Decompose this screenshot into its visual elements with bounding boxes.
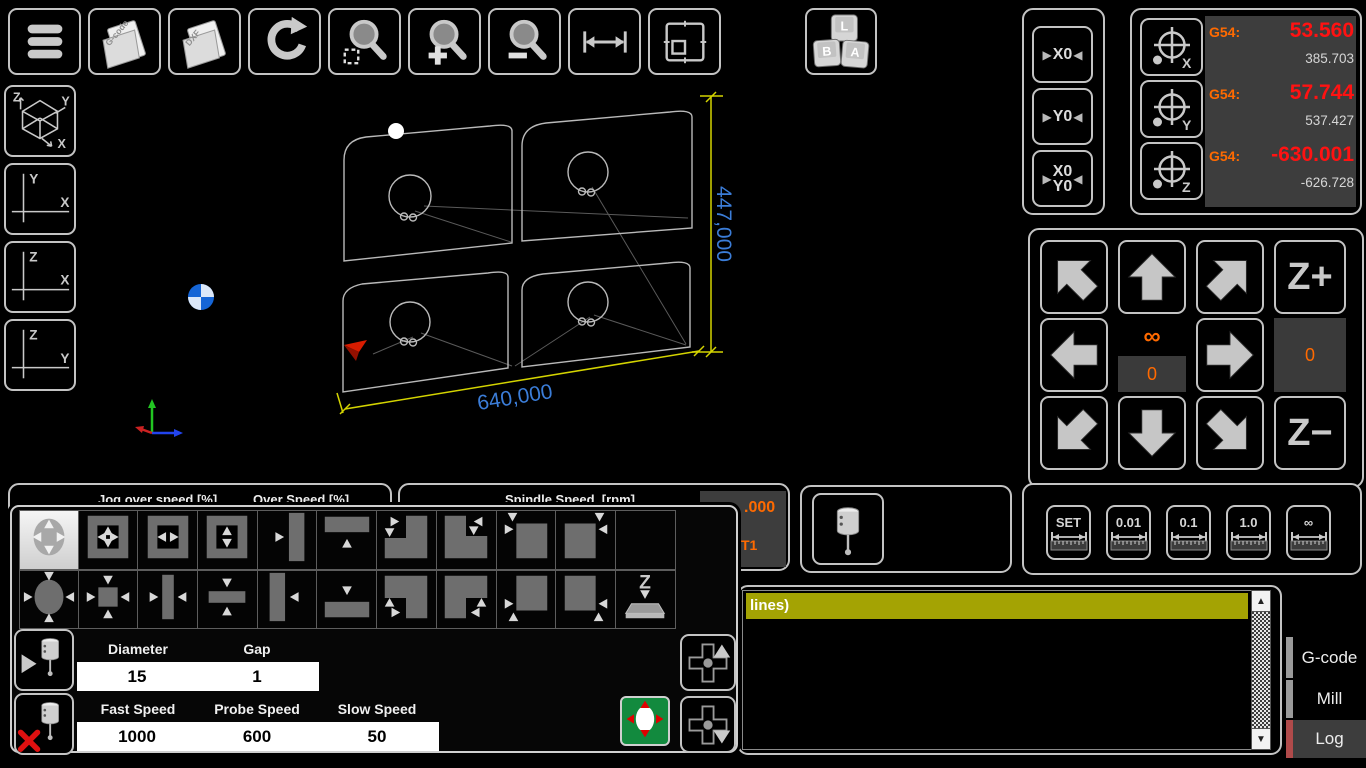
infinity-symbol: ∞ <box>1118 318 1186 356</box>
svg-text:Z: Z <box>29 327 37 342</box>
jog-z-plus-label: Z+ <box>1287 256 1332 299</box>
zero-button-label: X0Y0 <box>1053 164 1073 194</box>
probe-pattern-edge-right[interactable] <box>258 510 318 570</box>
keyboard-icon: LBA <box>810 12 872 72</box>
goto-zero-z-button[interactable]: Z <box>1140 142 1203 200</box>
machine-coordinate-value: 385.703 <box>1305 51 1354 66</box>
svg-text:X: X <box>60 273 69 288</box>
triangle-left-icon: ◀ <box>1073 48 1082 62</box>
zoom-window-button[interactable] <box>328 8 401 75</box>
probe-cancel-button[interactable] <box>14 693 74 755</box>
log-panel: lines) ▲ ▼ <box>737 585 1282 755</box>
svg-text:X: X <box>1182 55 1192 70</box>
probe-pattern-empty <box>616 510 676 570</box>
tab-accent-bar <box>1286 680 1293 718</box>
probe-pattern-boss-y[interactable] <box>198 570 258 630</box>
probe-pattern-corner-in-bl-icon <box>377 569 435 630</box>
svg-text:X: X <box>57 137 66 151</box>
step-button-label: 1.0 <box>1239 516 1257 530</box>
probe-icon <box>819 500 877 558</box>
zero-button-label: Y0 <box>1053 109 1073 124</box>
triangle-right-icon: ▶ <box>1042 110 1051 124</box>
tab-label: G-code <box>1293 648 1366 668</box>
probe-cancel-icon <box>16 696 72 752</box>
plane-view-icon: ZY <box>7 322 73 388</box>
zero-xy-button[interactable]: ▶X0Y0◀ <box>1032 150 1093 207</box>
measure-icon <box>578 15 632 69</box>
diameter-label: Diameter <box>108 641 168 657</box>
probe-start-icon <box>16 632 72 688</box>
fast-speed-field[interactable]: 1000 <box>77 722 197 751</box>
svg-text:X: X <box>60 195 69 210</box>
probe-pattern-z-plate[interactable]: Z <box>616 570 676 630</box>
jog-panel: Z+Z−∞00 <box>1028 228 1364 488</box>
probe-pattern-corner-out-tr-icon <box>557 509 615 570</box>
main-toolbar: G-codeDXF <box>8 8 721 75</box>
folder-dxf-icon: DXF <box>176 13 234 71</box>
step-∞-button[interactable]: ∞ <box>1286 505 1331 560</box>
svg-text:Z: Z <box>639 572 651 593</box>
probe-pattern-corner-in-tr-icon <box>437 509 495 570</box>
probe-pattern-pocket-4way-icon <box>79 509 137 570</box>
origin-marker <box>188 284 214 310</box>
triangle-left-icon: ◀ <box>1073 110 1082 124</box>
machine-coordinate-value: -626.728 <box>1301 175 1354 190</box>
jog-z-step-cell[interactable]: 0 <box>1274 318 1346 392</box>
log-scrollbar: ▲ ▼ <box>1251 590 1271 750</box>
selection-up-button[interactable] <box>680 634 736 691</box>
keyboard-shortcuts-button[interactable]: LBA <box>805 8 877 75</box>
slow-speed-field[interactable]: 50 <box>317 722 437 751</box>
zoom-out-button[interactable] <box>488 8 561 75</box>
tool-offset-value: .000 <box>744 499 775 517</box>
dimension-height-label: 447,000 <box>712 186 735 262</box>
probe-pattern-corner-in-br[interactable] <box>437 570 497 630</box>
ruler-icon <box>1170 530 1208 552</box>
tool-position-marker <box>388 123 404 139</box>
probe-start-button[interactable] <box>14 629 74 691</box>
svg-text:Z: Z <box>13 91 21 105</box>
probing-popup: Z Diameter Gap 15 1 Fast Speed Probe Spe… <box>10 505 738 753</box>
selection-down-button[interactable] <box>680 696 736 753</box>
jog-z-plus-button[interactable]: Z+ <box>1274 240 1346 314</box>
crosshair-z-icon: Z <box>1149 148 1195 194</box>
diameter-field[interactable]: 15 <box>77 662 197 691</box>
view-iso-button[interactable]: ZYX <box>4 85 76 157</box>
triangle-right-icon: ▶ <box>1042 172 1051 186</box>
coordinate-row: ZG54:-630.001-626.728 <box>1138 142 1356 200</box>
svg-text:L: L <box>841 19 849 33</box>
svg-text:Y: Y <box>60 351 69 366</box>
svg-text:Z: Z <box>1182 179 1191 194</box>
jog-down-button[interactable] <box>1118 396 1186 470</box>
ruler-icon <box>1110 530 1148 552</box>
svg-text:Y: Y <box>1182 117 1192 132</box>
tab-label: Mill <box>1293 689 1366 709</box>
jog-arrow-icon <box>1048 407 1100 459</box>
zero-axes-panel: ▶X0◀▶Y0◀▶X0Y0◀ <box>1022 8 1105 215</box>
coordinate-row: XG54:53.560385.703 <box>1138 18 1356 76</box>
probe-tool-button[interactable] <box>812 493 884 565</box>
jog-down-left-button[interactable] <box>1040 396 1108 470</box>
step-button-label: ∞ <box>1304 516 1313 530</box>
probe-pattern-hole-4way[interactable] <box>19 510 79 570</box>
step-button-label: SET <box>1056 516 1081 530</box>
probe-pattern-corner-in-tr[interactable] <box>437 510 497 570</box>
zero-button-label: X0 <box>1053 47 1073 62</box>
probe-run-pattern-button[interactable] <box>620 696 670 746</box>
jog-arrow-icon <box>1204 407 1256 459</box>
step-0_1-button[interactable]: 0.1 <box>1166 505 1211 560</box>
svg-text:A: A <box>850 45 860 60</box>
zoom-in-icon <box>418 15 472 69</box>
cross-down-icon <box>683 700 733 750</box>
probe-pattern-pocket-4way[interactable] <box>79 510 139 570</box>
work-coordinate-value: 57.744 <box>1290 81 1354 105</box>
step-set-button[interactable]: SET <box>1046 505 1091 560</box>
jog-down-right-button[interactable] <box>1196 396 1264 470</box>
probe-pattern-edge-top[interactable] <box>317 510 377 570</box>
tab-mill[interactable]: Mill <box>1286 680 1366 718</box>
jog-up-button[interactable] <box>1118 240 1186 314</box>
gap-field[interactable]: 1 <box>197 662 317 691</box>
fit-view-button[interactable] <box>648 8 721 75</box>
direction-arrow-marker <box>344 340 367 361</box>
goto-zero-x-button[interactable]: X <box>1140 18 1203 76</box>
probe-pattern-corner-out-bl-icon <box>497 569 555 630</box>
probe-pattern-z-plate-icon: Z <box>616 569 674 630</box>
probe-speed-label: Probe Speed <box>214 701 300 717</box>
iso-view-icon: ZYX <box>7 88 73 154</box>
tab-accent-bar <box>1286 720 1293 758</box>
jog-xy-step-value: 0 <box>1118 356 1186 392</box>
scrollbar-track[interactable] <box>1251 612 1271 728</box>
probe-pattern-pocket-x-icon <box>139 509 197 570</box>
open-dxf-button[interactable]: DXF <box>168 8 241 75</box>
probe-pattern-edge-bottom[interactable] <box>317 570 377 630</box>
plane-view-icon: ZX <box>7 244 73 310</box>
triangle-left-icon: ◀ <box>1073 172 1082 186</box>
crosshair-y-icon: Y <box>1149 86 1195 132</box>
plane-view-icon: YX <box>7 166 73 232</box>
probe-pattern-pocket-y-icon <box>198 509 256 570</box>
probe-pattern-pocket-y[interactable] <box>198 510 258 570</box>
zero-y-button[interactable]: ▶Y0◀ <box>1032 88 1093 145</box>
probe-pattern-edge-bottom-icon <box>318 569 376 630</box>
folder-gcode-icon: G-code <box>96 13 154 71</box>
jog-up-right-button[interactable] <box>1196 240 1264 314</box>
jog-z-step-value: 0 <box>1305 345 1315 366</box>
menu-button[interactable] <box>8 8 81 75</box>
jog-arrow-icon <box>1126 251 1178 303</box>
svg-text:Y: Y <box>29 171 38 186</box>
svg-text:Y: Y <box>61 94 70 108</box>
zoom-window-icon <box>338 15 392 69</box>
machine-coordinate-value: 537.427 <box>1305 113 1354 128</box>
jog-right-button[interactable] <box>1196 318 1264 392</box>
jog-arrow-icon <box>1204 329 1256 381</box>
tab-label: Log <box>1293 729 1366 749</box>
zero-x-button[interactable]: ▶X0◀ <box>1032 26 1093 83</box>
probe-pattern-corner-out-tl[interactable] <box>497 510 557 570</box>
jog-z-minus-label: Z− <box>1287 412 1332 455</box>
jog-arrow-icon <box>1048 251 1100 303</box>
scroll-up-button[interactable]: ▲ <box>1251 590 1271 612</box>
jog-arrow-icon <box>1048 329 1100 381</box>
probe-pattern-hole-4way-icon <box>20 509 78 570</box>
probe-pattern-corner-in-bl[interactable] <box>377 570 437 630</box>
measure-button[interactable] <box>568 8 641 75</box>
ruler-icon <box>1230 530 1268 552</box>
step-0_01-button[interactable]: 0.01 <box>1106 505 1151 560</box>
step-1_0-button[interactable]: 1.0 <box>1226 505 1271 560</box>
refresh-icon <box>258 15 312 69</box>
probe-tool-panel <box>800 485 1012 573</box>
view-side-button[interactable]: ZY <box>4 319 76 391</box>
slow-speed-label: Slow Speed <box>338 701 417 717</box>
probe-pattern-corner-out-tl-icon <box>497 509 555 570</box>
work-coordinate-value: -630.001 <box>1271 143 1354 167</box>
step-size-row: SET0.010.11.0∞ <box>1046 505 1331 560</box>
probe-pattern-edge-left[interactable] <box>258 570 318 630</box>
ruler-icon <box>1290 530 1328 552</box>
part-outlines <box>343 111 692 392</box>
scroll-down-button[interactable]: ▼ <box>1251 728 1271 750</box>
probe-pattern-edge-left-icon <box>258 569 316 630</box>
tool-number-value: T1 <box>741 537 757 553</box>
probe-pattern-corner-out-bl[interactable] <box>497 570 557 630</box>
probe-pattern-corner-out-br[interactable] <box>556 570 616 630</box>
refresh-button[interactable] <box>248 8 321 75</box>
jog-arrow-icon <box>1126 407 1178 459</box>
probe-pattern-boss-square-icon <box>79 569 137 630</box>
probe-pattern-edge-right-icon <box>258 509 316 570</box>
work-coordinate-value: 53.560 <box>1290 19 1354 43</box>
probe-pattern-corner-in-tl-icon <box>377 509 435 570</box>
probe-pattern-corner-out-br-icon <box>557 569 615 630</box>
ruler-icon <box>1050 530 1088 552</box>
probe-pattern-boss-x-icon <box>139 569 197 630</box>
cross-up-icon <box>683 638 733 688</box>
speed-fields: 1000 600 50 <box>77 722 439 751</box>
jog-arrow-icon <box>1204 251 1256 303</box>
jog-xy-step-cell[interactable]: ∞0 <box>1118 318 1186 392</box>
step-size-panel: SET0.010.11.0∞ <box>1022 483 1362 575</box>
coordinates-panel: XG54:53.560385.703YG54:57.744537.427ZG54… <box>1130 8 1362 215</box>
jog-up-left-button[interactable] <box>1040 240 1108 314</box>
crosshair-x-icon: X <box>1149 24 1195 70</box>
view-selector-column: ZYXYXZXZY <box>4 85 76 391</box>
probe-pattern-corner-in-tl[interactable] <box>377 510 437 570</box>
coordinate-row: YG54:57.744537.427 <box>1138 80 1356 138</box>
zoom-in-button[interactable] <box>408 8 481 75</box>
g54-label: G54: <box>1209 148 1240 164</box>
probe-pattern-boss-4way-icon <box>20 569 78 630</box>
tab-g-code[interactable]: G-code <box>1286 637 1366 678</box>
probe-pattern-grid: Z <box>19 510 676 629</box>
probe-run-icon <box>622 696 668 747</box>
probe-pattern-boss-y-icon <box>198 569 256 630</box>
goto-zero-y-button[interactable]: Y <box>1140 80 1203 138</box>
probe-speed-field[interactable]: 600 <box>197 722 317 751</box>
probe-pattern-corner-in-br-icon <box>437 569 495 630</box>
probe-pattern-boss-4way[interactable] <box>19 570 79 630</box>
svg-text:B: B <box>822 44 832 59</box>
triangle-right-icon: ▶ <box>1042 48 1051 62</box>
svg-text:Z: Z <box>29 249 37 264</box>
menu-icon <box>18 15 72 69</box>
zoom-out-icon <box>498 15 552 69</box>
probe-pattern-edge-top-icon <box>318 509 376 570</box>
jog-z-minus-button[interactable]: Z− <box>1274 396 1346 470</box>
probe-pattern-corner-out-tr[interactable] <box>556 510 616 570</box>
g54-label: G54: <box>1209 24 1240 40</box>
probe-pattern-boss-x[interactable] <box>138 570 198 630</box>
g54-label: G54: <box>1209 86 1240 102</box>
fit-view-icon <box>658 15 712 69</box>
open-gcode-button[interactable]: G-code <box>88 8 161 75</box>
fast-speed-label: Fast Speed <box>101 701 176 717</box>
diameter-gap-fields: 15 1 <box>77 662 319 691</box>
axis-triad <box>135 399 183 437</box>
log-list-item[interactable]: lines) <box>746 593 1248 619</box>
step-button-label: 0.01 <box>1116 516 1141 530</box>
view-front-button[interactable]: ZX <box>4 241 76 313</box>
view-top-button[interactable]: YX <box>4 163 76 235</box>
tab-accent-bar <box>1286 637 1293 678</box>
step-button-label: 0.1 <box>1179 516 1197 530</box>
probe-pattern-pocket-x[interactable] <box>138 510 198 570</box>
jog-left-button[interactable] <box>1040 318 1108 392</box>
log-list[interactable]: lines) <box>742 590 1252 750</box>
gap-label: Gap <box>243 641 270 657</box>
tab-log[interactable]: Log <box>1286 720 1366 758</box>
probe-pattern-boss-square[interactable] <box>79 570 139 630</box>
